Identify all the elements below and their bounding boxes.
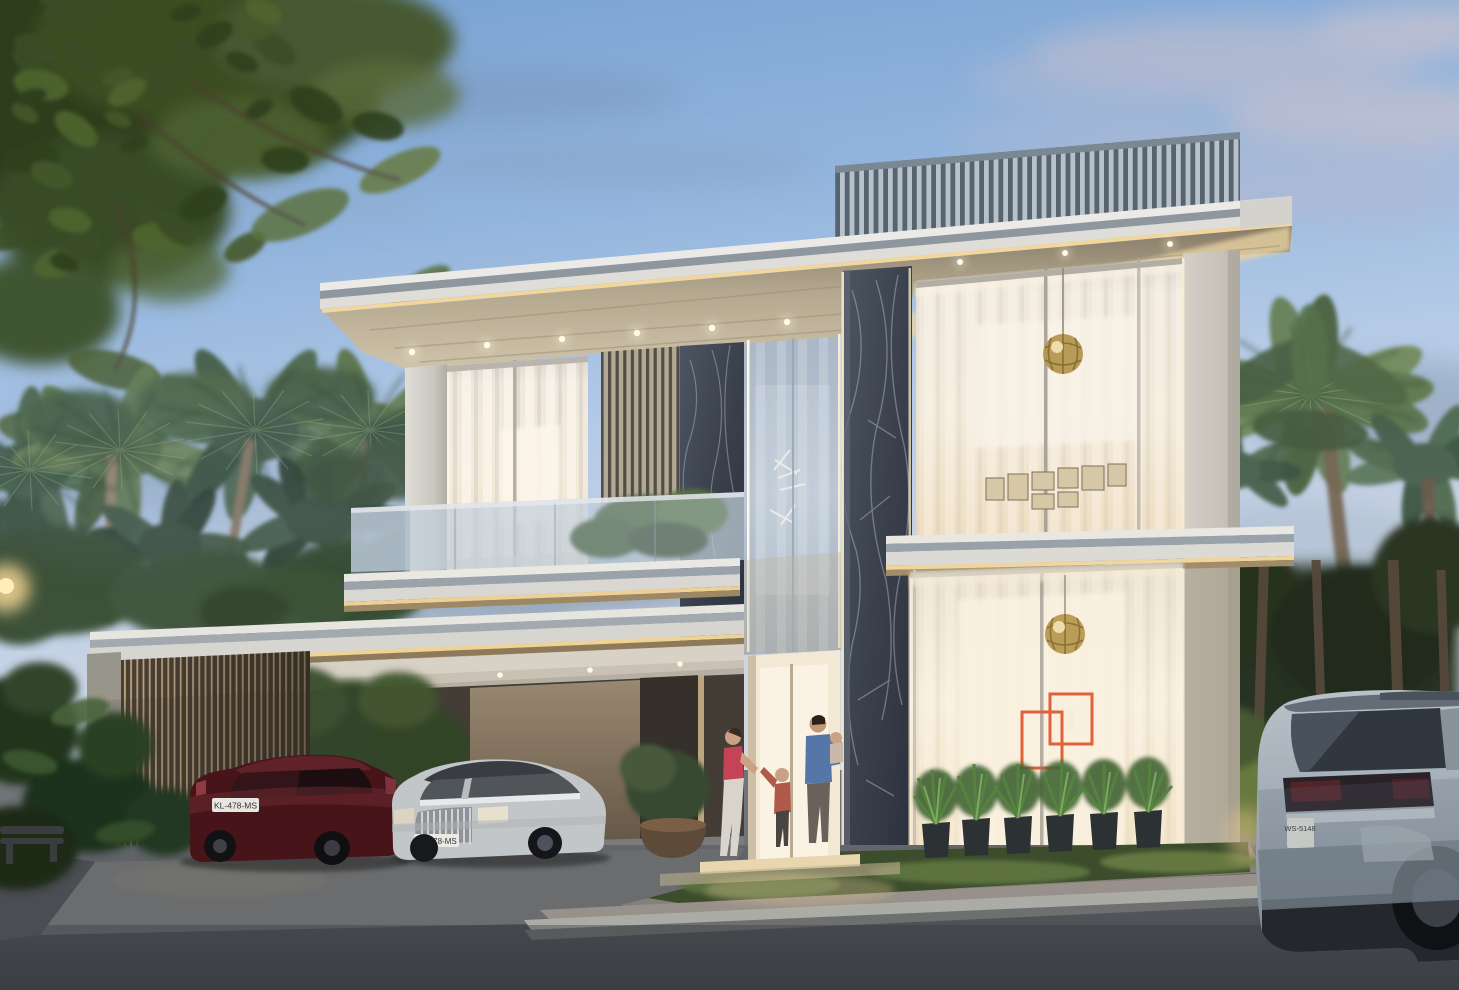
svg-text:KL-478-MS: KL-478-MS bbox=[214, 801, 257, 811]
